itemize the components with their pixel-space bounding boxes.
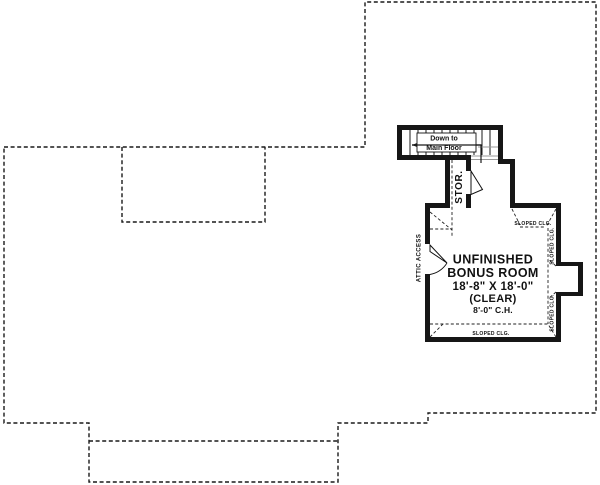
stair-main-floor-label: Main Floor: [426, 145, 462, 152]
wall-segment: [397, 125, 402, 160]
wall-segment: [556, 203, 561, 266]
room-clear-label: (CLEAR): [469, 293, 516, 305]
wall-segment: [510, 159, 515, 208]
wall-segment: [578, 262, 583, 296]
wall-segment: [498, 125, 503, 164]
sloped-clg-label-top: SLOPED CLG.: [514, 221, 552, 227]
sloped-clg-label-right-lower: SLOPED CLG.: [550, 294, 556, 332]
roof-outline: [4, 2, 596, 482]
wall-segment: [425, 274, 430, 342]
wall-segment: [466, 160, 471, 171]
dormer-outline: [122, 147, 265, 222]
wall-segment: [510, 203, 561, 208]
attic-access-label: ATTIC ACCESS: [417, 234, 423, 282]
storage-door: [471, 171, 483, 195]
stair-text-box: Down to Main Floor: [412, 133, 481, 152]
floor-plan-svg: Down to Main Floor STOR. ATTIC ACCESS UN…: [0, 0, 600, 485]
wall-segment: [466, 194, 471, 208]
room-dimensions: 18'-8" X 18'-0": [453, 281, 534, 293]
room-ceiling-height: 8'-0" C.H.: [473, 305, 513, 315]
wall-segment: [445, 155, 450, 208]
wall-segment: [397, 125, 503, 130]
wall-segment: [425, 203, 430, 244]
sloped-clg-label-right-upper: SLOPED CLG.: [550, 227, 556, 265]
room-name-line1: UNFINISHED: [453, 253, 533, 267]
wall-segment: [425, 337, 561, 342]
storage-label: STOR.: [454, 170, 465, 203]
wall-segment: [556, 292, 561, 342]
sloped-clg-label-bottom: SLOPED CLG.: [472, 331, 510, 337]
attic-access-door: [430, 245, 447, 275]
floor-plan-page: Down to Main Floor STOR. ATTIC ACCESS UN…: [0, 0, 600, 485]
room-name-line2: BONUS ROOM: [447, 266, 539, 280]
wall-segment: [397, 155, 471, 160]
stair-down-label: Down to: [430, 136, 458, 143]
